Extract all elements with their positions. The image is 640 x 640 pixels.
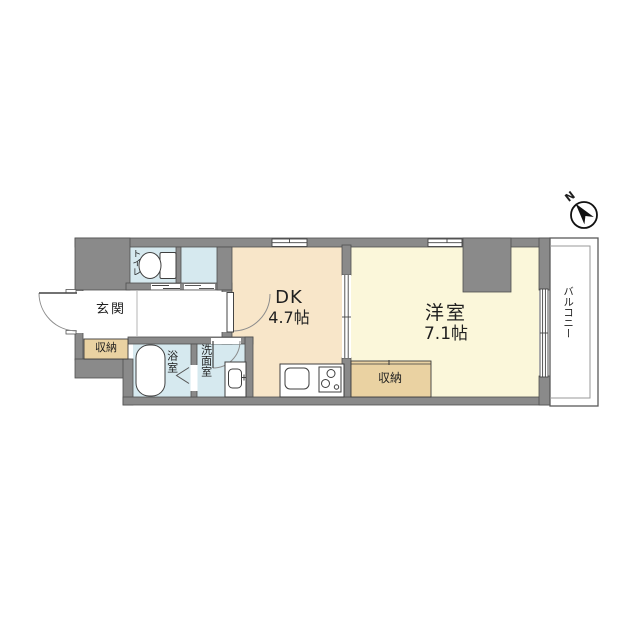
entrance-label: 玄関	[96, 303, 126, 318]
sliding-door-opening	[342, 275, 351, 358]
wall-utility-right	[217, 247, 232, 290]
wall-top-left-block	[75, 238, 130, 290]
dk-name: DK	[249, 288, 329, 309]
western-window-icon	[428, 239, 462, 247]
wall-right-top	[539, 238, 550, 290]
dk-label: DK 4.7帖	[249, 288, 329, 327]
washroom-label: 洗面室	[199, 344, 212, 377]
balcony-label: バルコニー	[562, 286, 574, 339]
western-room-size: 7.1帖	[396, 325, 496, 345]
entrance-door-icon	[39, 290, 77, 335]
wall-toilet-divider	[176, 247, 181, 283]
room-closet-label: 収納	[370, 372, 410, 386]
dk-window-icon	[272, 239, 307, 247]
entrance-closet-label: 収納	[86, 342, 126, 355]
vanity-sink-icon	[225, 362, 247, 397]
north-arrow-icon	[571, 202, 597, 228]
toilet-icon	[139, 253, 176, 279]
kitchen-counter-icon	[280, 364, 344, 397]
balcony-sliding-window-icon	[540, 289, 548, 377]
washroom-door-opening	[211, 338, 241, 344]
wall-bottom	[123, 397, 550, 405]
bathtub-icon	[136, 345, 165, 396]
western-room-name: 洋室	[396, 303, 496, 325]
bath-door-opening	[191, 365, 198, 391]
stove-icon	[319, 367, 341, 392]
kitchen-sink-icon	[285, 368, 309, 389]
wall-dk-western-top	[342, 245, 351, 275]
western-room-label: 洋室 7.1帖	[396, 303, 496, 344]
dk-size: 4.7帖	[249, 309, 329, 327]
toilet-label: トイレ	[130, 249, 140, 276]
utility-floor	[181, 247, 218, 283]
floor-plan: 玄関 収納 トイレ 浴室 洗面室 DK 4.7帖 洋室 7.1帖 収納 バルコニ…	[0, 0, 640, 640]
entrance-opening	[74, 291, 84, 333]
wall-left-lower	[75, 332, 83, 360]
wall-bottom-left-block	[75, 359, 130, 378]
bathroom-label: 浴室	[165, 350, 178, 374]
wall-right-bottom	[539, 376, 550, 405]
pillar	[463, 238, 511, 292]
